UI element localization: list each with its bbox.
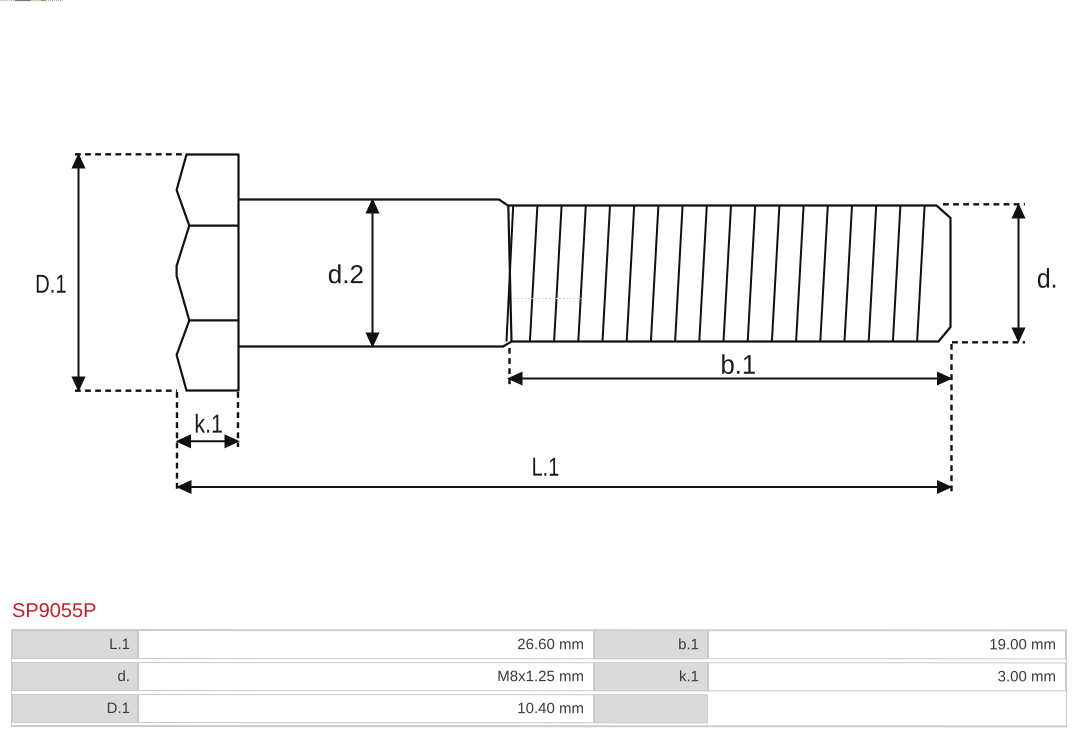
svg-text:D.1: D.1 <box>35 269 67 299</box>
svg-text:b.1: b.1 <box>721 350 757 380</box>
svg-text:d.2: d.2 <box>328 259 364 289</box>
svg-text:k.1: k.1 <box>194 409 223 439</box>
svg-text:d.: d. <box>1037 264 1058 294</box>
svg-text:L.1: L.1 <box>532 452 560 482</box>
